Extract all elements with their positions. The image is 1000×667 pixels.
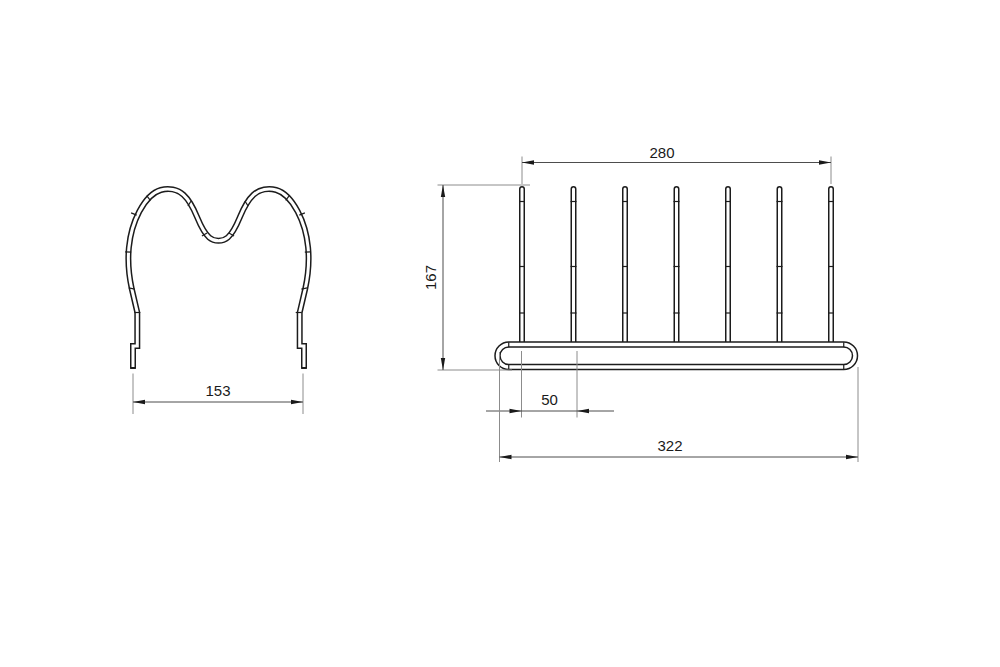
side-view-wire-clip: [125, 189, 311, 368]
arrow-right-icon: [510, 409, 522, 413]
arrow-right-icon: [846, 455, 858, 459]
wire-clip-tangent-ticks: [125, 196, 311, 313]
wire-clip-core: [128, 189, 308, 367]
arrow-down-icon: [441, 358, 445, 370]
arrow-right-icon: [291, 400, 303, 404]
drawing-canvas: 280 167 50 322 153: [0, 0, 1000, 667]
base-rail: [495, 342, 858, 370]
dimension-prong-span: 280: [522, 144, 831, 184]
prong-4: [674, 189, 680, 343]
front-view-rack: [495, 189, 858, 370]
arrow-left-icon: [500, 455, 512, 459]
dimension-side-width: 153: [133, 374, 303, 415]
prong-3: [622, 189, 628, 343]
dimension-label-167: 167: [422, 265, 439, 290]
dimension-label-322: 322: [657, 437, 682, 454]
arrow-left-icon: [577, 409, 589, 413]
arrow-left-icon: [133, 400, 145, 404]
prong-2: [571, 189, 577, 343]
wire-clip-rod: [128, 189, 308, 368]
prong-5: [725, 189, 731, 343]
drawing-sheet: 280 167 50 322 153: [0, 0, 1000, 667]
arrow-left-icon: [522, 160, 534, 164]
prong-7: [828, 189, 834, 343]
prong-6: [777, 189, 783, 343]
dimension-label-153: 153: [205, 382, 230, 399]
dimension-label-50: 50: [541, 391, 558, 408]
arrow-right-icon: [819, 160, 831, 164]
dimension-label-280: 280: [649, 144, 674, 161]
prong-1: [519, 189, 525, 343]
arrow-up-icon: [441, 185, 445, 197]
